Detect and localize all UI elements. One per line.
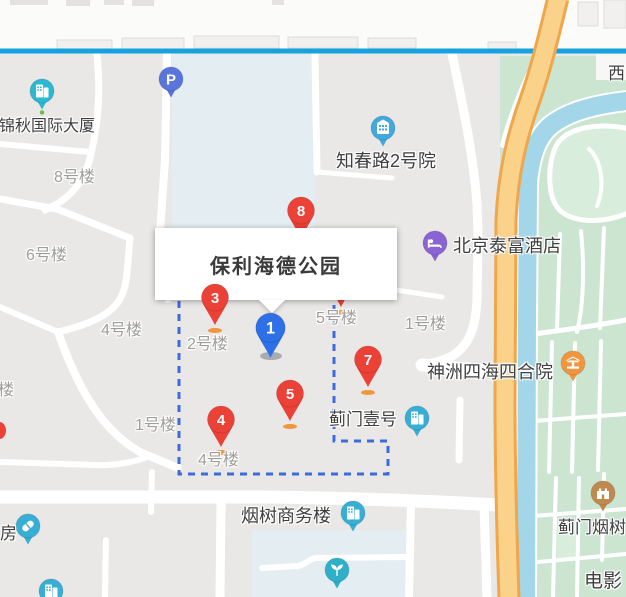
info-window[interactable]: 保利海德公园 (155, 228, 397, 300)
map-viewport[interactable]: 8号楼 6号楼 4号楼 2号楼 5号楼 1号楼 1号楼 4号楼 楼 锦秋国际大厦… (0, 0, 626, 597)
siheyuan-marker[interactable] (559, 350, 587, 390)
pin-1[interactable]: 1 (252, 312, 289, 362)
building-sw-marker[interactable] (37, 578, 65, 597)
park-patch (557, 520, 577, 558)
jimen-yanshu-marker[interactable] (589, 480, 617, 520)
yanshu-marker[interactable] (339, 500, 367, 540)
tree-dot (40, 110, 44, 114)
svg-text:7: 7 (364, 352, 372, 369)
park-corner (596, 54, 626, 80)
svg-text:8: 8 (297, 203, 305, 220)
taifu-hotel-marker[interactable] (421, 230, 449, 270)
parking-icon: P (166, 72, 176, 89)
pharmacy-marker[interactable] (14, 513, 42, 553)
svg-text:5: 5 (286, 386, 294, 403)
pin-3[interactable]: 3 (198, 283, 232, 329)
svg-text:4: 4 (217, 412, 226, 429)
garden-marker[interactable] (323, 557, 351, 597)
pin-7[interactable]: 7 (351, 345, 385, 391)
zhichun-marker[interactable] (369, 115, 397, 155)
jinqiu-marker[interactable] (28, 78, 56, 118)
info-window-title: 保利海德公园 (210, 250, 342, 279)
pin-4[interactable]: 4 (204, 405, 238, 451)
parking-marker[interactable]: P (157, 66, 185, 106)
svg-text:3: 3 (211, 290, 219, 307)
pin-5[interactable]: 5 (273, 379, 307, 425)
jimen1-marker[interactable] (403, 405, 431, 445)
svg-text:1: 1 (266, 320, 275, 338)
